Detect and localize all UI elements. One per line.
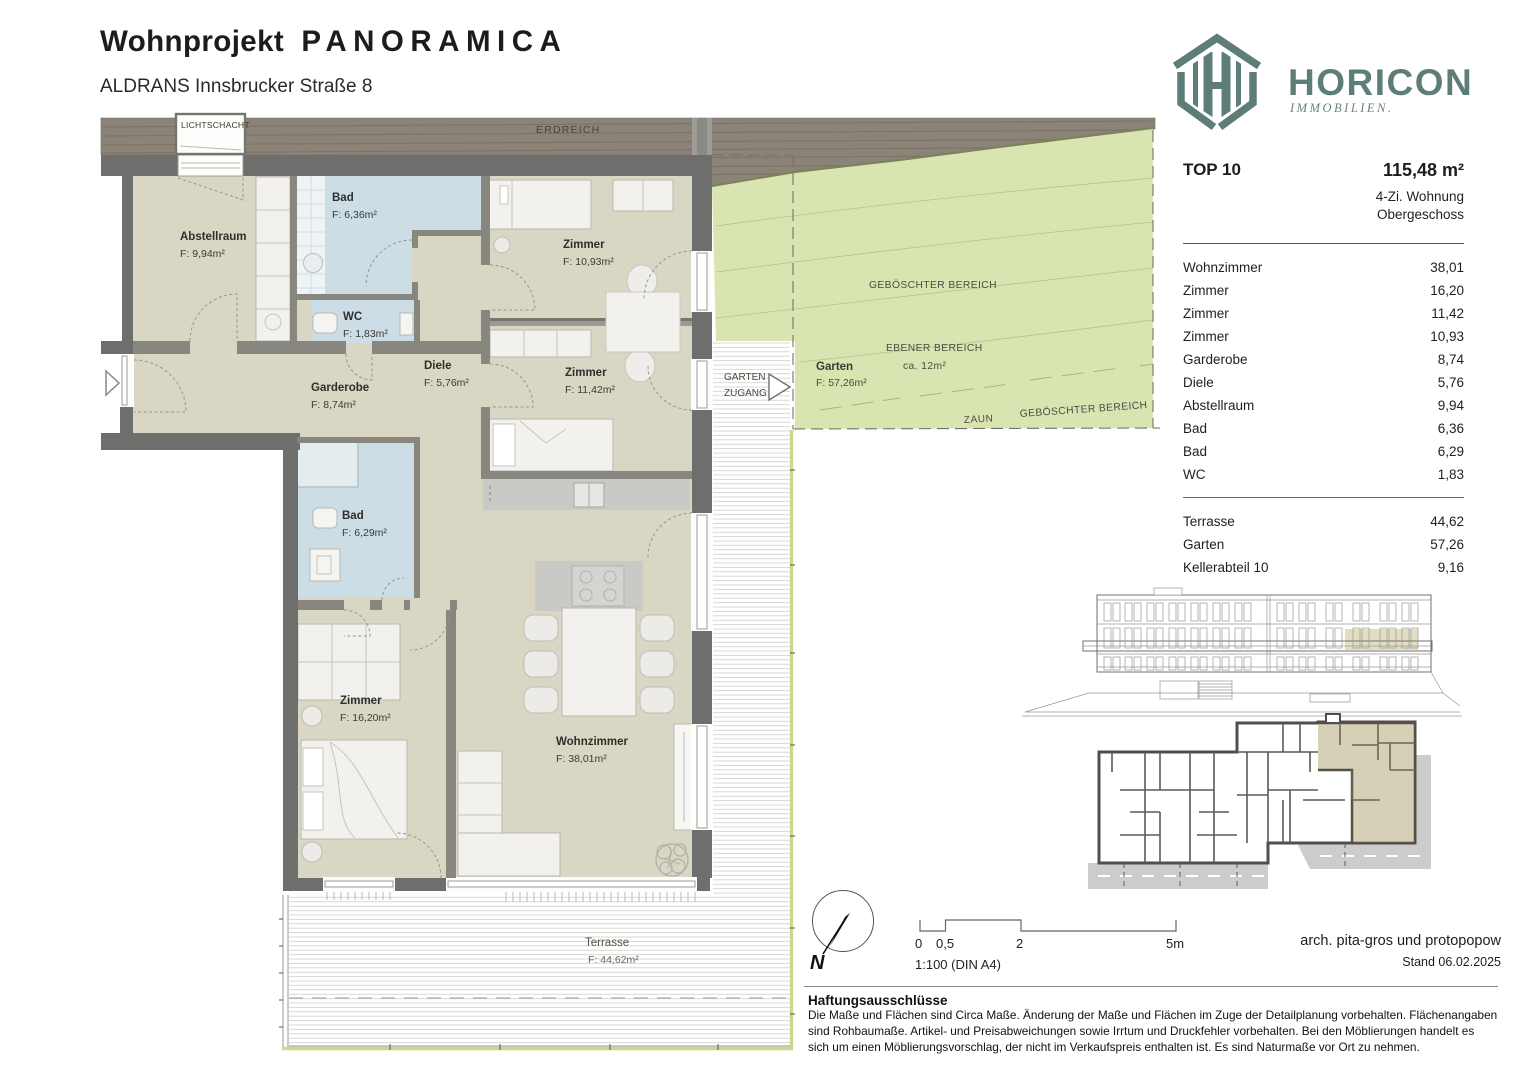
- svg-text:0,5: 0,5: [936, 936, 954, 951]
- svg-text:EBENER BEREICH: EBENER BEREICH: [886, 343, 983, 354]
- svg-text:N: N: [810, 952, 825, 974]
- svg-text:2: 2: [1016, 936, 1023, 951]
- svg-text:ca. 12m²: ca. 12m²: [903, 361, 946, 372]
- svg-text:Zimmer: Zimmer: [565, 367, 607, 379]
- svg-text:F: 9,94m²: F: 9,94m²: [180, 248, 225, 260]
- svg-text:WC: WC: [343, 311, 362, 323]
- svg-text:F: 57,26m²: F: 57,26m²: [816, 377, 867, 389]
- svg-text:F: 38,01m²: F: 38,01m²: [556, 753, 607, 765]
- svg-text:Diele: Diele: [424, 360, 452, 372]
- svg-text:ZAUN: ZAUN: [964, 413, 994, 426]
- svg-text:F: 10,93m²: F: 10,93m²: [563, 256, 614, 268]
- svg-text:5m: 5m: [1166, 936, 1184, 951]
- svg-text:ERDREICH: ERDREICH: [536, 124, 600, 136]
- svg-text:F: 16,20m²: F: 16,20m²: [340, 712, 391, 724]
- svg-text:Bad: Bad: [332, 192, 354, 204]
- svg-text:LICHTSCHACHT: LICHTSCHACHT: [181, 120, 250, 130]
- svg-text:0: 0: [915, 936, 922, 951]
- svg-text:GARTEN: GARTEN: [724, 372, 766, 383]
- svg-text:Bad: Bad: [342, 510, 364, 522]
- svg-text:F: 11,42m²: F: 11,42m²: [565, 384, 615, 396]
- svg-text:Terrasse: Terrasse: [585, 937, 629, 949]
- svg-text:F: 5,76m²: F: 5,76m²: [424, 377, 469, 389]
- svg-text:Garten: Garten: [816, 361, 853, 373]
- svg-text:F: 6,36m²: F: 6,36m²: [332, 209, 377, 221]
- svg-text:1:100 (DIN A4): 1:100 (DIN A4): [915, 957, 1001, 972]
- svg-text:Zimmer: Zimmer: [563, 239, 605, 251]
- svg-text:GEBÖSCHTER BEREICH: GEBÖSCHTER BEREICH: [869, 279, 997, 291]
- svg-text:F: 1,83m²: F: 1,83m²: [343, 328, 388, 340]
- svg-text:ZUGANG: ZUGANG: [724, 388, 767, 399]
- svg-text:Wohnzimmer: Wohnzimmer: [556, 736, 629, 748]
- svg-text:F: 44,62m²: F: 44,62m²: [588, 954, 639, 966]
- svg-text:Abstellraum: Abstellraum: [180, 231, 246, 243]
- svg-text:Zimmer: Zimmer: [340, 695, 382, 707]
- svg-text:F: 6,29m²: F: 6,29m²: [342, 527, 387, 539]
- svg-text:F: 8,74m²: F: 8,74m²: [311, 399, 356, 411]
- svg-text:Garderobe: Garderobe: [311, 382, 369, 394]
